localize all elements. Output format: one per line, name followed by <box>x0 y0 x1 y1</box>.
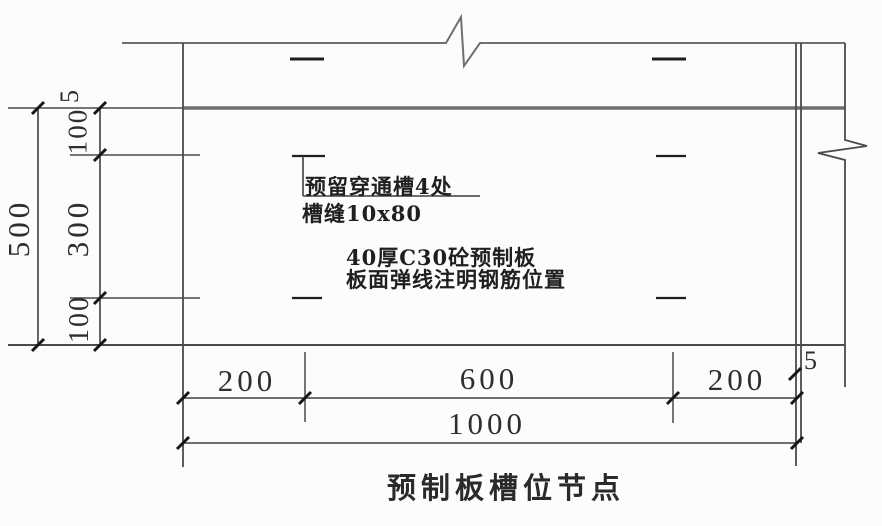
annotation-reserved-grooves: 预留穿通槽4处 <box>305 171 453 201</box>
dim-label-100-bottom: 100 <box>64 295 96 343</box>
dim-label-5-right: 5 <box>804 346 818 376</box>
right-boundary-with-break <box>818 43 867 387</box>
dim-label-5-top: 5 <box>55 89 85 103</box>
extension-lines <box>8 108 673 423</box>
dim-label-100-top: 100 <box>63 108 94 155</box>
dim-label-1000: 1000 <box>448 406 526 442</box>
annotation-groove-size: 槽缝10x80 <box>302 198 422 228</box>
top-edge-line-with-break <box>122 17 845 66</box>
drawing-canvas: 500 5 100 300 100 200 600 200 1000 5 预留穿… <box>0 0 882 526</box>
tick <box>789 368 801 380</box>
dim-label-300: 300 <box>60 199 96 258</box>
drawing-title: 预制板槽位节点 <box>387 465 625 507</box>
dim-label-200-left: 200 <box>218 363 277 399</box>
annotation-rebar-marking: 板面弹线注明钢筋位置 <box>346 264 566 294</box>
dim-label-200-right: 200 <box>708 362 767 398</box>
dim-label-500: 500 <box>1 199 37 258</box>
dim-label-600: 600 <box>460 361 519 397</box>
